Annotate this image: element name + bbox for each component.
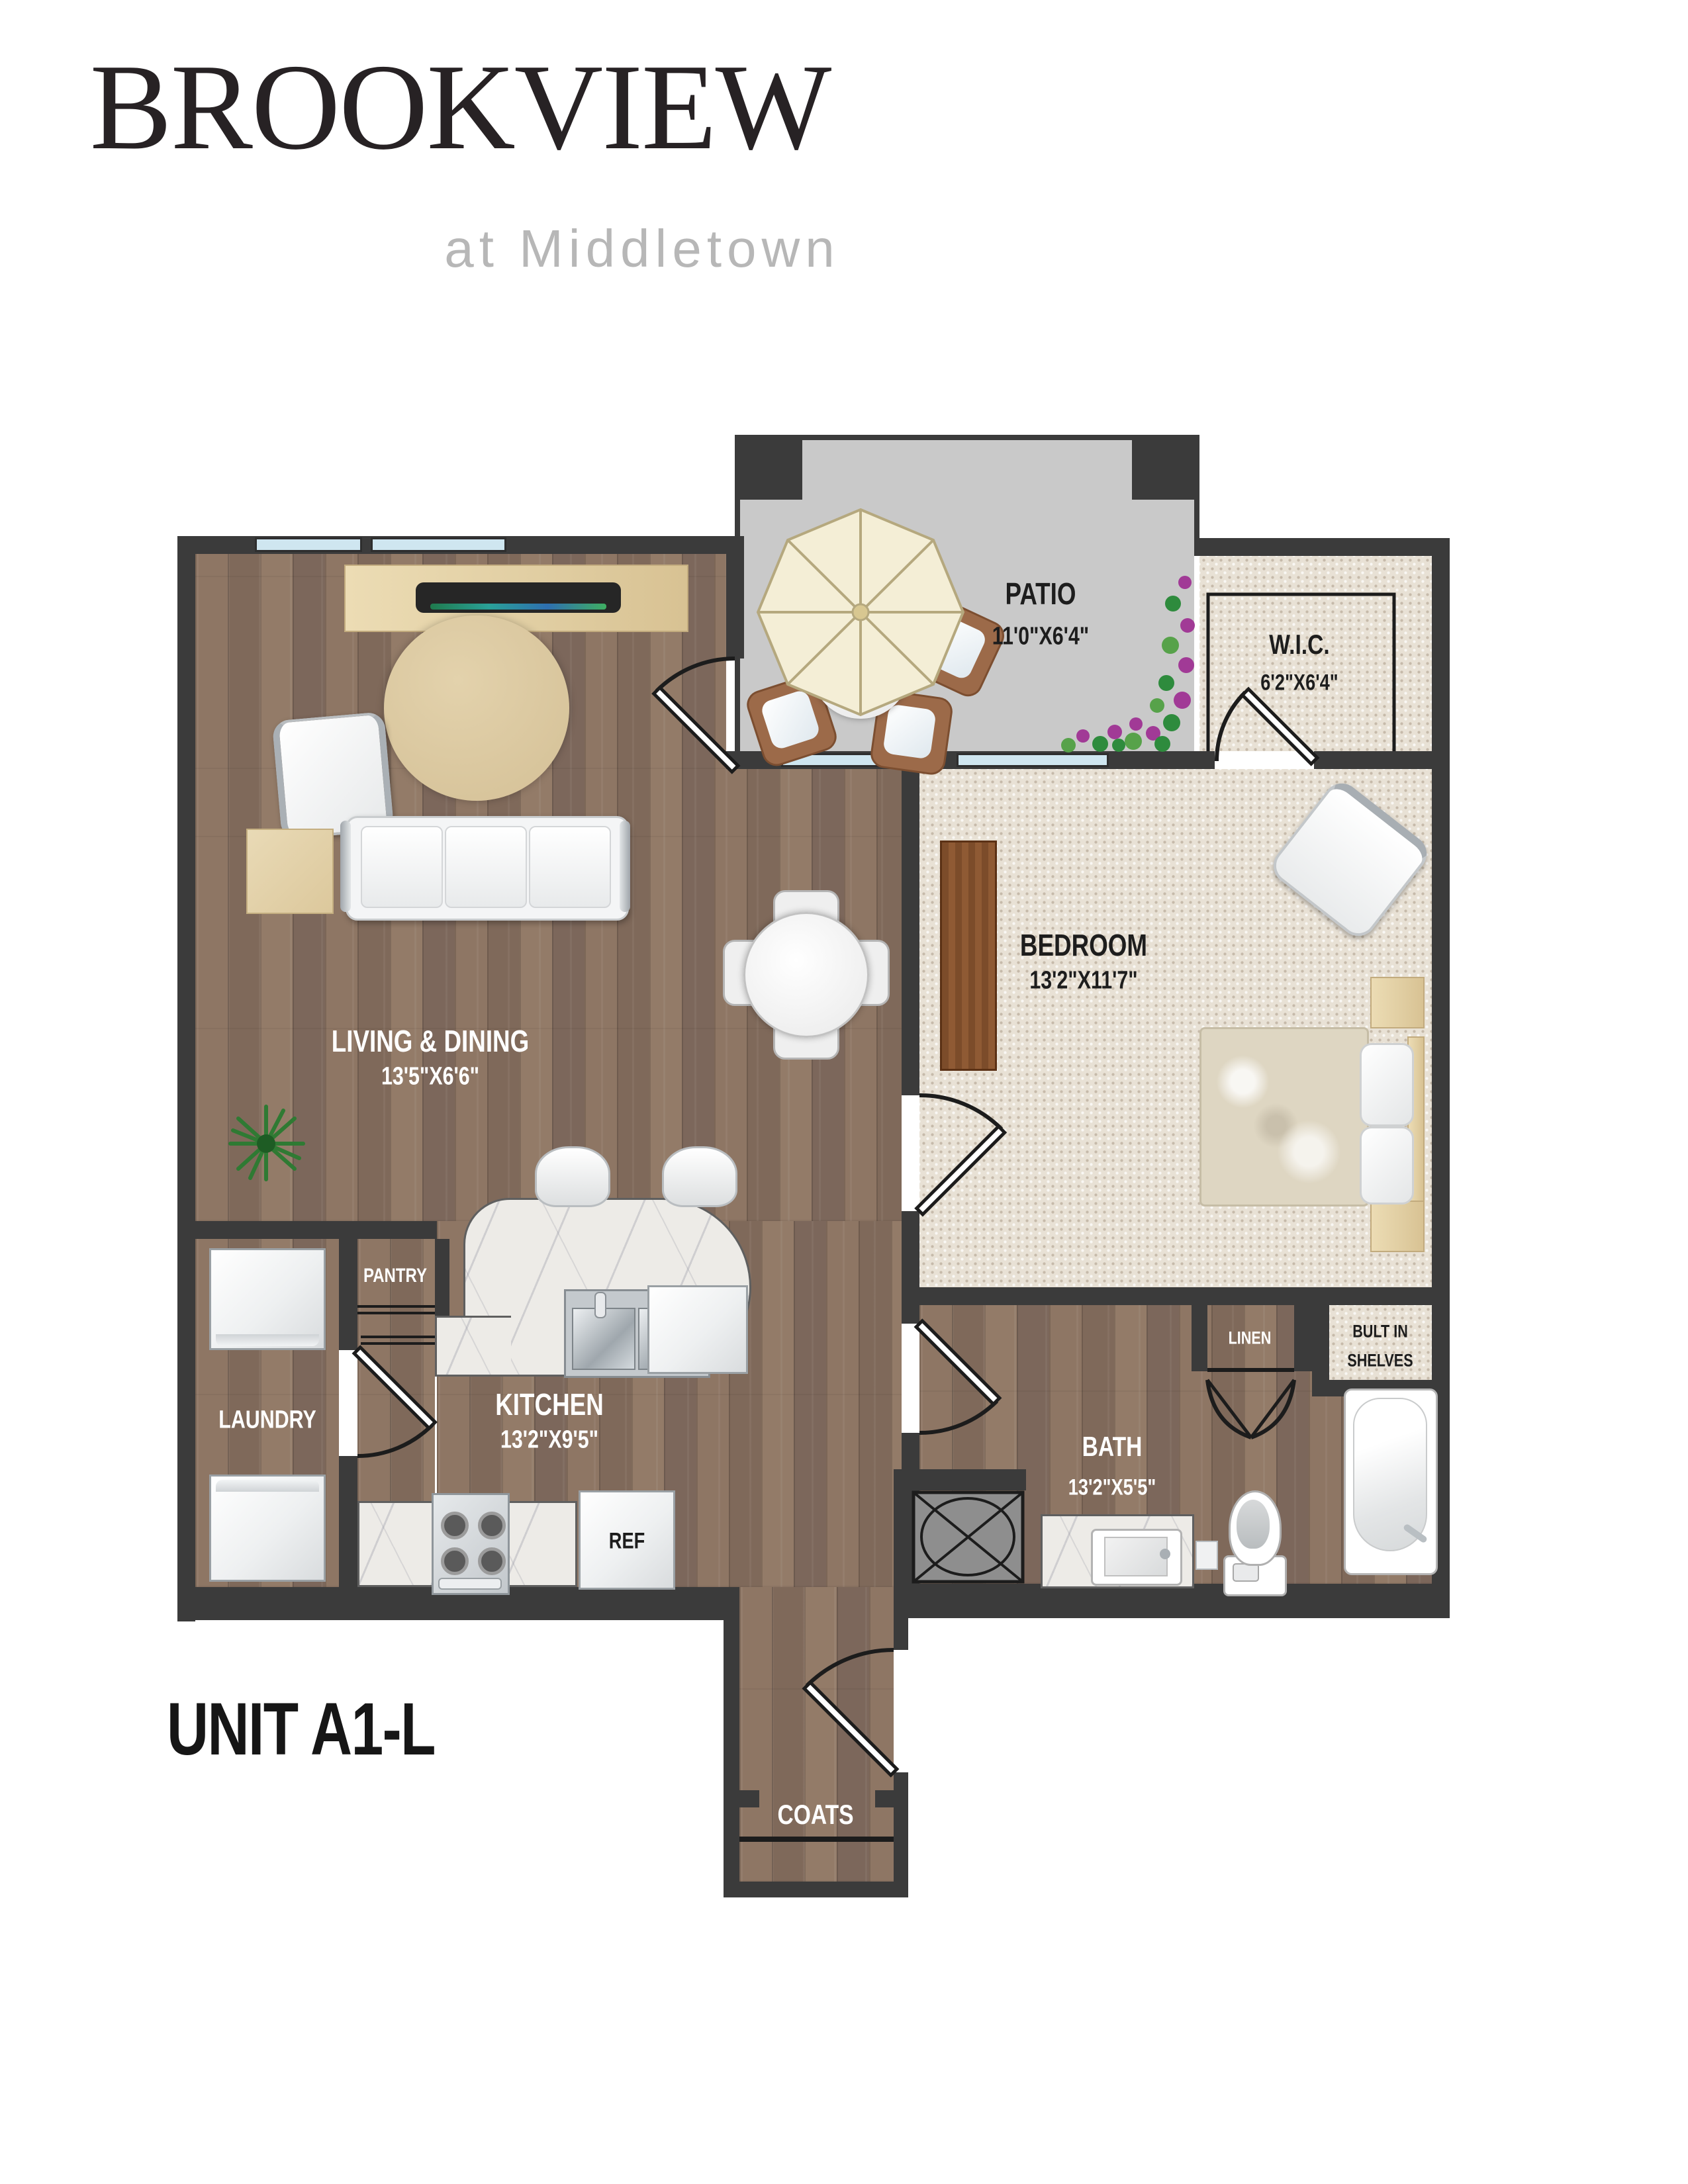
wall [902,1287,1450,1305]
soundbar [430,604,606,610]
wall [902,1305,919,1324]
faucet-icon [594,1292,606,1318]
sofa-cushion [361,826,443,908]
patio-column [735,435,802,500]
patio-dims: 11'0"X6'4" [992,623,1089,651]
burner-icon [478,1547,506,1575]
unit-label: UNIT A1-L [167,1686,435,1772]
built-in-label-2: SHELVES [1347,1351,1413,1371]
bedroom-label: BEDROOM [1020,927,1147,963]
bedroom-dims: 13'2"X11'7" [1029,967,1137,995]
patio-chair-cushion [882,704,937,759]
bar-stool [535,1146,610,1207]
wall [894,1618,908,1650]
dining-table [743,912,869,1038]
window [371,537,506,552]
window [255,537,362,552]
faucet-icon [1160,1549,1170,1559]
linen-label: LINEN [1229,1328,1272,1349]
wic-dims: 6'2"X6'4" [1260,670,1338,696]
patio-wall [735,435,740,769]
stove-controls [438,1578,502,1590]
wall [339,1239,357,1350]
pillow [1360,1126,1414,1205]
nightstand [1370,1199,1425,1252]
patio-wall [1194,435,1199,542]
bath-label: BATH [1082,1431,1143,1463]
wall [902,1584,1450,1618]
nightstand [1370,977,1425,1028]
burner-icon [441,1512,469,1539]
patio-label: PATIO [1006,576,1076,612]
wall [724,1617,739,1897]
coats-label: COATS [777,1799,853,1831]
built-in-label-1: BULT IN [1352,1322,1408,1342]
wic-label: W.I.C. [1269,629,1329,660]
bathtub-basin [1353,1398,1427,1551]
burner-icon [478,1512,506,1539]
hall-floor [739,1587,894,1882]
patio-column [1132,435,1199,500]
wall [1192,1305,1207,1371]
wall [894,1772,908,1897]
patio-table [812,621,910,719]
pantry-label: PANTRY [363,1265,427,1287]
brand-tagline: at Middletown [410,218,874,279]
wall [1294,1305,1312,1371]
wall [894,1469,1026,1490]
wall [177,1221,437,1239]
bath-sink-basin [1104,1537,1168,1576]
wall [339,1456,357,1587]
wall [902,1211,919,1287]
wall [739,1790,759,1807]
dishwasher [647,1285,748,1374]
living-dims: 13'5"X6'6" [381,1063,479,1091]
wall [1199,751,1215,769]
wall [894,1490,912,1618]
living-label: LIVING & DINING [332,1023,530,1059]
dresser [940,841,997,1071]
sofa-cushion [529,826,611,908]
bar-stool [662,1146,737,1207]
wall [1314,751,1432,769]
patio-wall [735,435,1199,440]
washer-panel [216,1334,319,1346]
kitchen-dims: 13'2"X9'5" [500,1426,598,1455]
soap-dish [1196,1541,1218,1570]
floor-plan-sheet: BROOKVIEW at Middletown [0,0,1688,2184]
wall [177,536,195,1621]
dryer-panel [216,1480,319,1492]
wall [1194,538,1450,556]
refrigerator-label: REF [609,1529,645,1555]
wall [902,751,919,1095]
side-table [246,829,334,914]
laundry-label: LAUNDRY [218,1406,316,1435]
kitchen-counter-ext [435,1316,511,1377]
bed [1199,1027,1369,1206]
toilet-flush [1233,1563,1259,1582]
window [957,753,1109,767]
wall [875,1790,894,1807]
sofa-arm [340,821,351,912]
pillow [1360,1043,1414,1126]
toilet-bowl-inner [1237,1500,1270,1549]
sofa-cushion [445,826,527,908]
rug [384,615,569,801]
kitchen-label: KITCHEN [495,1387,604,1422]
sofa-arm [620,821,630,912]
bath-dims: 13'2"X5'5" [1068,1475,1156,1501]
wall [1312,1305,1329,1380]
burner-icon [441,1547,469,1575]
wall [724,1882,908,1897]
brand-logo: BROOKVIEW [40,36,880,178]
